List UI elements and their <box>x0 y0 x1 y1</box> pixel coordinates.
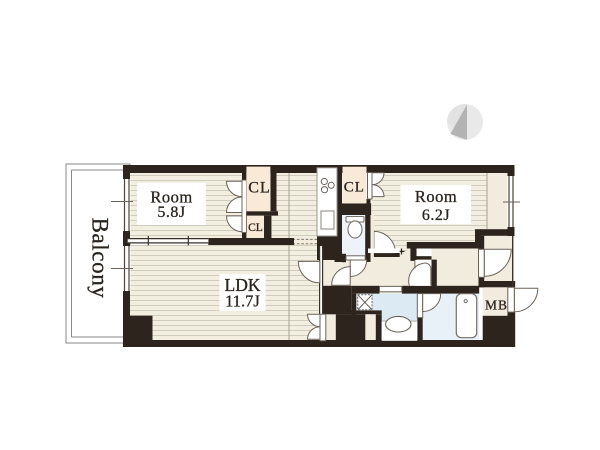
svg-text:11.7J: 11.7J <box>225 292 260 311</box>
svg-text:CL: CL <box>248 180 270 197</box>
svg-text:MB: MB <box>485 298 508 313</box>
svg-text:5.8J: 5.8J <box>157 204 185 221</box>
svg-text:CL: CL <box>248 222 263 234</box>
svg-text:6.2J: 6.2J <box>422 207 450 224</box>
svg-text:Room: Room <box>415 187 457 206</box>
svg-text:Balcony: Balcony <box>88 218 113 299</box>
svg-text:CL: CL <box>344 180 365 196</box>
